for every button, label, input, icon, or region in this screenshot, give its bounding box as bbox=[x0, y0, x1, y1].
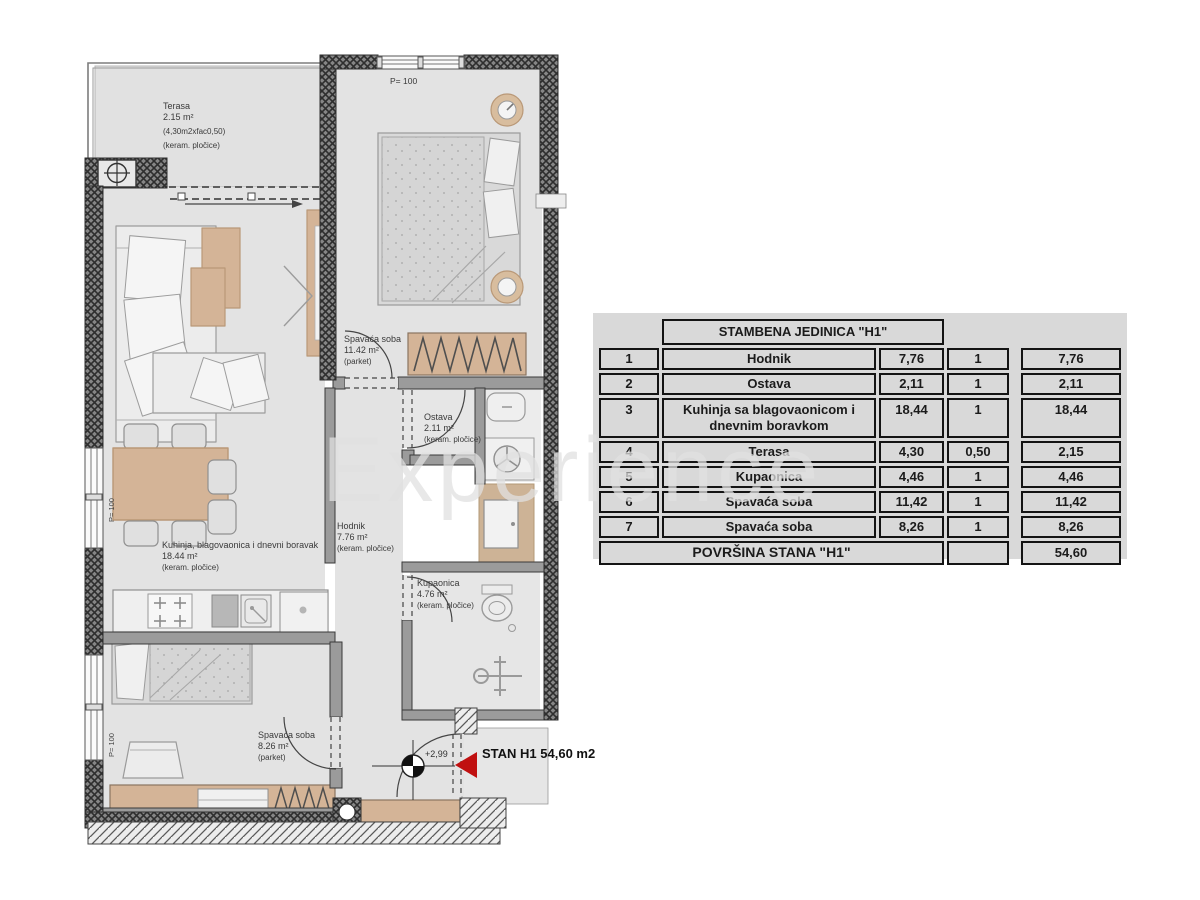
row-name: Spavaća soba bbox=[662, 491, 876, 513]
label-bedroom-top: Spavaća soba 11.42 m² (parket) bbox=[344, 334, 401, 367]
row-name: Ostava bbox=[662, 373, 876, 395]
table-header-row: STAMBENA JEDINICA "H1" bbox=[599, 319, 1121, 345]
row-name: Hodnik bbox=[662, 348, 876, 370]
table-footer-row: POVRŠINA STANA "H1" 54,60 bbox=[599, 541, 1121, 565]
label-living: Kuhinja, blagovaonica i dnevni boravak 1… bbox=[162, 540, 318, 573]
row-total: 4,46 bbox=[1021, 466, 1121, 488]
label-unit: STAN H1 54,60 m2 bbox=[482, 747, 595, 762]
row-name: Kuhinja sa blagovaonicom i dnevnim borav… bbox=[662, 398, 876, 438]
row-area: 8,26 bbox=[879, 516, 944, 538]
footer-factor-empty bbox=[947, 541, 1009, 565]
table-row: 4 Terasa 4,30 0,50 2,15 bbox=[599, 441, 1121, 463]
label-window-left-2: P= 100 bbox=[107, 733, 116, 757]
row-area: 11,42 bbox=[879, 491, 944, 513]
label-bedroom-bottom: Spavaća soba 8.26 m² (parket) bbox=[258, 730, 315, 763]
table-row: 2 Ostava 2,11 1 2,11 bbox=[599, 373, 1121, 395]
kitchen-counter bbox=[113, 590, 328, 632]
floorplan-sheet: Terasa 2.15 m² (4,30m2xfac0,50) (keram. … bbox=[0, 0, 1200, 900]
row-num: 1 bbox=[599, 348, 659, 370]
table-row: 3 Kuhinja sa blagovaonicom i dnevnim bor… bbox=[599, 398, 1121, 438]
label-elevation: +2,99 bbox=[425, 749, 448, 759]
row-factor: 1 bbox=[947, 516, 1009, 538]
area-table: STAMBENA JEDINICA "H1" 1 Hodnik 7,76 1 7… bbox=[593, 313, 1127, 559]
footer-label: POVRŠINA STANA "H1" bbox=[599, 541, 944, 565]
row-total: 18,44 bbox=[1021, 398, 1121, 438]
row-factor: 0,50 bbox=[947, 441, 1009, 463]
row-area: 4,30 bbox=[879, 441, 944, 463]
row-total: 2,15 bbox=[1021, 441, 1121, 463]
row-name: Spavaća soba bbox=[662, 516, 876, 538]
table-row: 7 Spavaća soba 8,26 1 8,26 bbox=[599, 516, 1121, 538]
row-factor: 1 bbox=[947, 466, 1009, 488]
footer-total: 54,60 bbox=[1021, 541, 1121, 565]
row-num: 6 bbox=[599, 491, 659, 513]
row-factor: 1 bbox=[947, 348, 1009, 370]
row-area: 4,46 bbox=[879, 466, 944, 488]
row-name: Terasa bbox=[662, 441, 876, 463]
table-row: 6 Spavaća soba 11,42 1 11,42 bbox=[599, 491, 1121, 513]
row-num: 3 bbox=[599, 398, 659, 438]
row-num: 5 bbox=[599, 466, 659, 488]
row-total: 2,11 bbox=[1021, 373, 1121, 395]
row-total: 7,76 bbox=[1021, 348, 1121, 370]
row-name: Kupaonica bbox=[662, 466, 876, 488]
row-total: 8,26 bbox=[1021, 516, 1121, 538]
table-row: 1 Hodnik 7,76 1 7,76 bbox=[599, 348, 1121, 370]
label-window-top: P= 100 bbox=[390, 76, 417, 87]
row-factor: 1 bbox=[947, 373, 1009, 395]
row-num: 7 bbox=[599, 516, 659, 538]
row-num: 4 bbox=[599, 441, 659, 463]
row-factor: 1 bbox=[947, 491, 1009, 513]
table-title: STAMBENA JEDINICA "H1" bbox=[662, 319, 944, 345]
row-area: 7,76 bbox=[879, 348, 944, 370]
row-area: 18,44 bbox=[879, 398, 944, 438]
row-area: 2,11 bbox=[879, 373, 944, 395]
label-hall: Hodnik 7.76 m² (keram. pločice) bbox=[337, 521, 394, 554]
row-num: 2 bbox=[599, 373, 659, 395]
row-factor: 1 bbox=[947, 398, 1009, 438]
label-terrace: Terasa 2.15 m² (4,30m2xfac0,50) (keram. … bbox=[163, 101, 225, 151]
table-row: 5 Kupaonica 4,46 1 4,46 bbox=[599, 466, 1121, 488]
label-bathroom: Kupaonica 4.76 m² (keram. pločice) bbox=[417, 578, 474, 611]
row-total: 11,42 bbox=[1021, 491, 1121, 513]
label-storage: Ostava 2.11 m² (keram. pločice) bbox=[424, 412, 481, 445]
label-window-left-1: P= 100 bbox=[107, 498, 116, 522]
